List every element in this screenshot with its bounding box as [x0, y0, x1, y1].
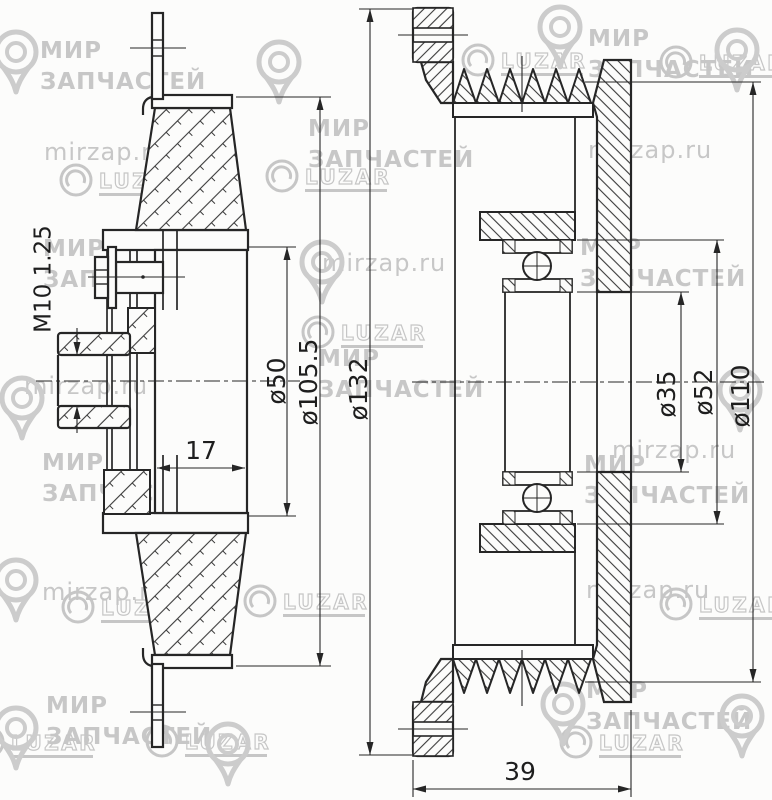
- web-top-section: [593, 60, 631, 292]
- pulley-technical-drawing: LUZAR МИР ЗАПЧАСТЕЙ mirzap.ru: [0, 0, 772, 800]
- hub-lower-cap: [58, 406, 130, 428]
- dim-d110-label: ø110: [726, 364, 755, 427]
- bearing-bottom: [503, 472, 572, 524]
- drawing-page: LUZAR МИР ЗАПЧАСТЕЙ mirzap.ru: [0, 0, 772, 800]
- web-bottom-section: [593, 472, 631, 702]
- hub-upper-cap: [58, 333, 130, 355]
- dim-d132-label: ø132: [344, 357, 373, 420]
- dim-39-label: 39: [504, 757, 536, 786]
- dim-thread-label: M10 1.25: [31, 225, 57, 333]
- upper-web-section: [136, 108, 246, 230]
- dim-d52-label: ø52: [689, 368, 718, 415]
- dim-d105-label: ø105.5: [294, 339, 323, 426]
- lower-web-section: [136, 533, 246, 655]
- dim-d35-label: ø35: [652, 370, 681, 417]
- dim-17-label: 17: [185, 436, 217, 465]
- dim-d50-label: ø50: [262, 357, 291, 404]
- bearing-top: [503, 240, 572, 292]
